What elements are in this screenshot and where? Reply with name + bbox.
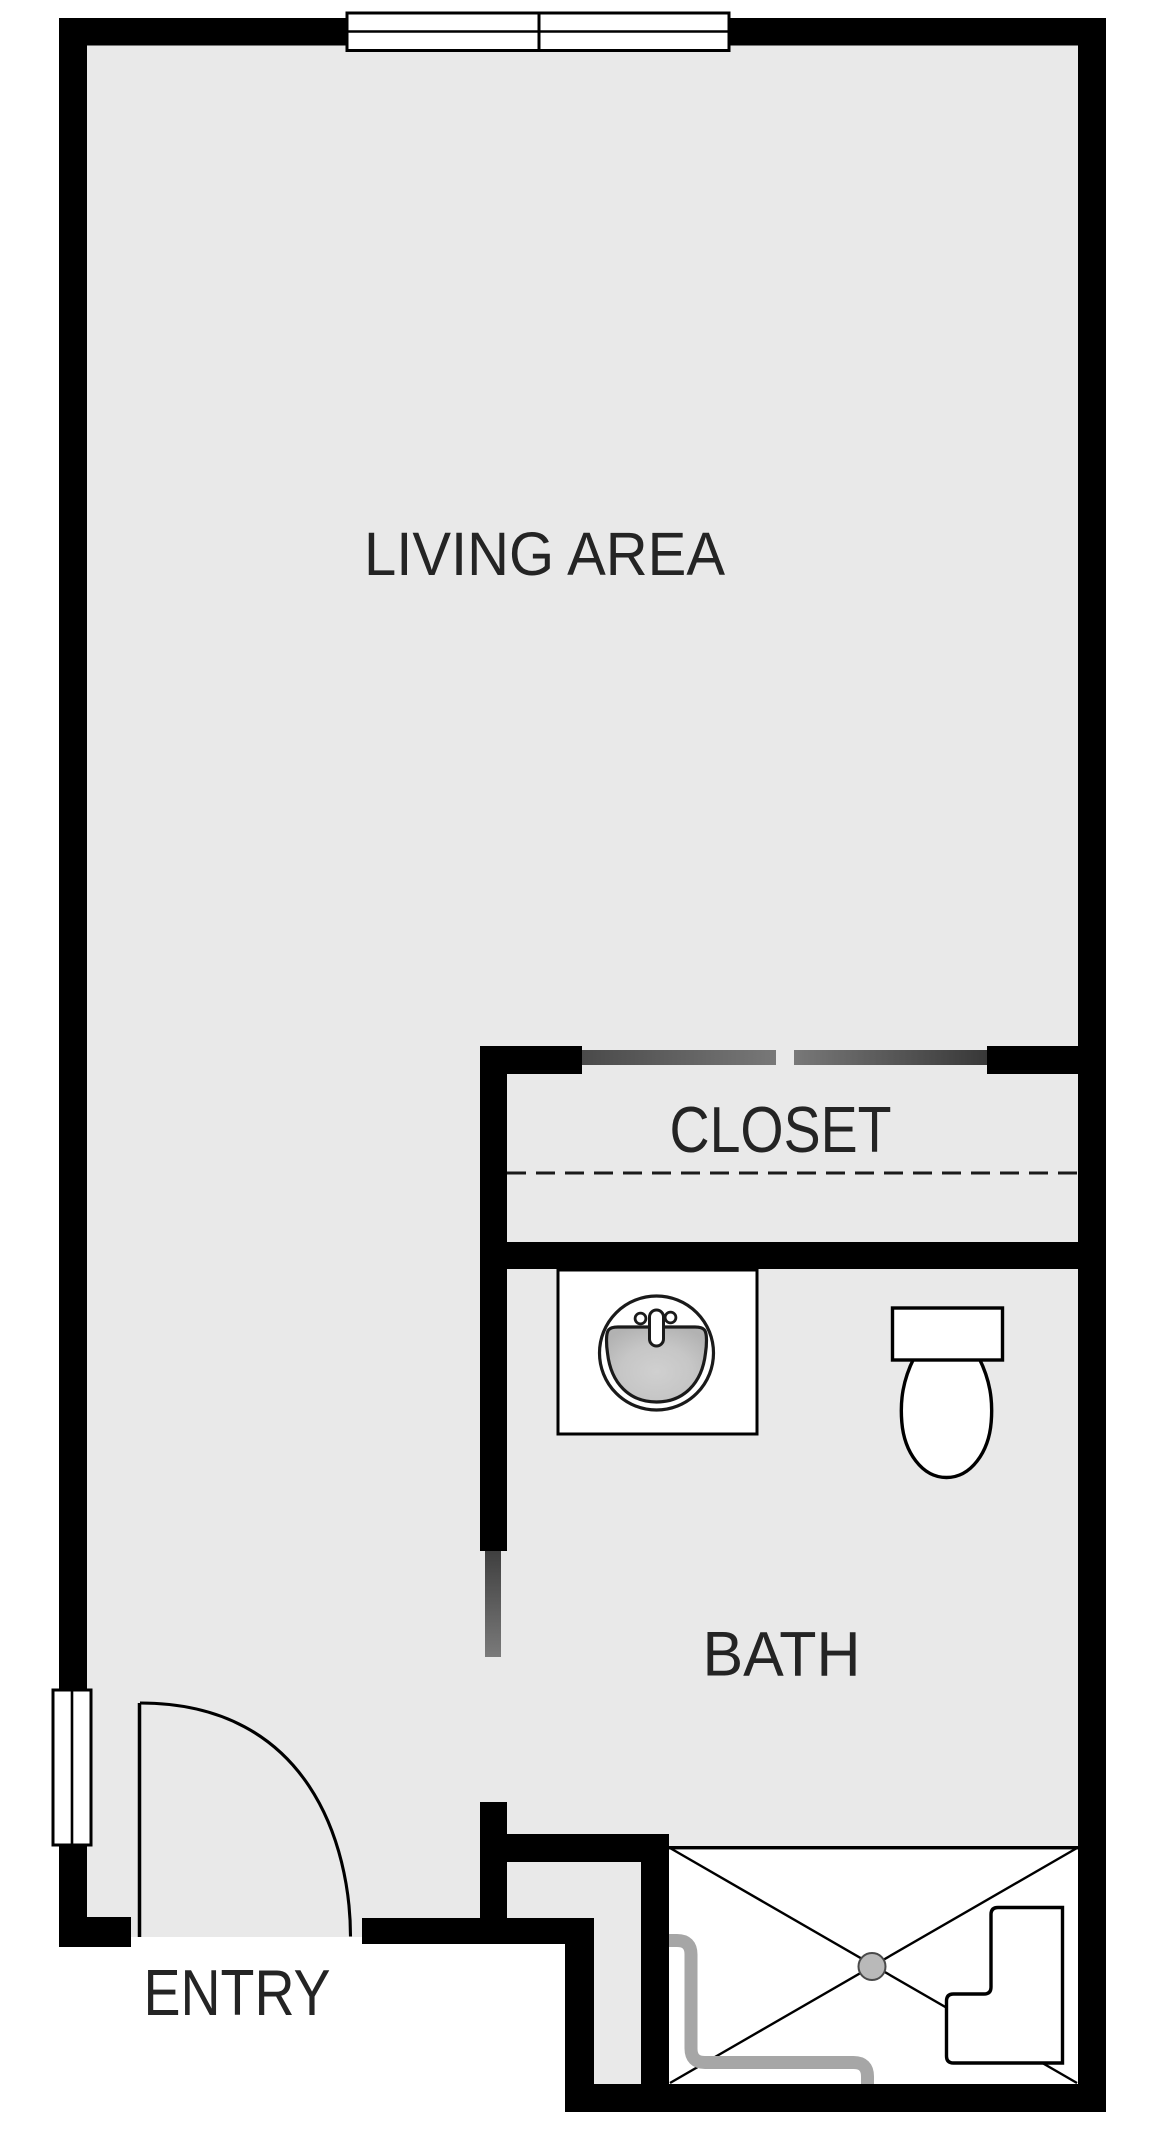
svg-text:BATH: BATH — [703, 1620, 861, 1690]
svg-text:LIVING AREA: LIVING AREA — [364, 520, 725, 588]
svg-text:CLOSET: CLOSET — [670, 1093, 892, 1166]
svg-text:ENTRY: ENTRY — [144, 1956, 331, 2029]
